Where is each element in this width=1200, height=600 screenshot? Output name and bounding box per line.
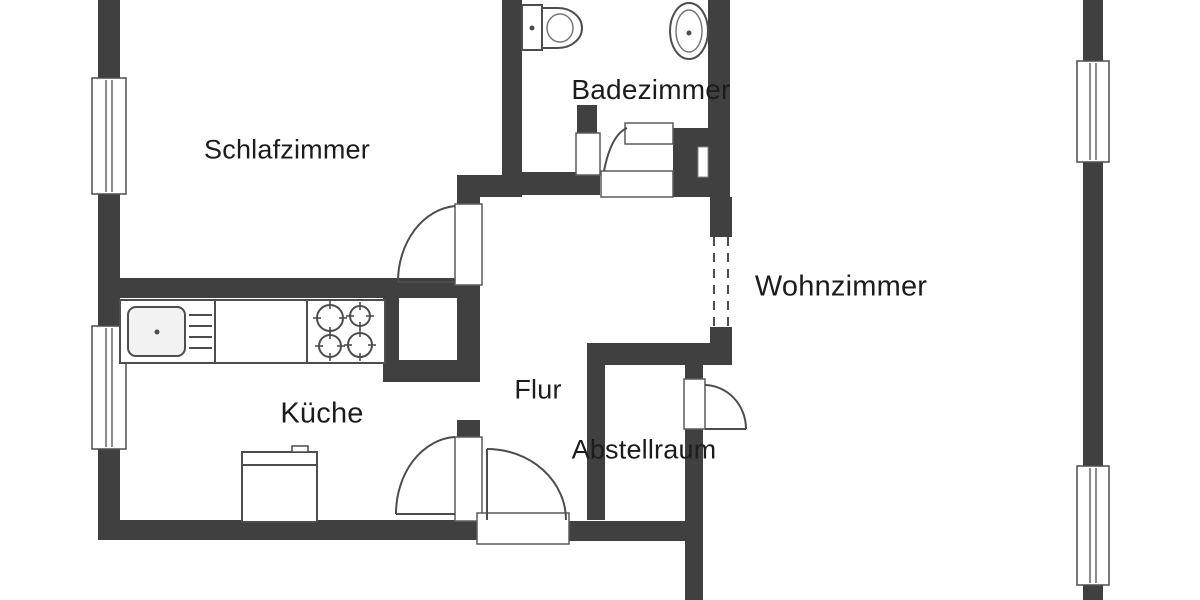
window-living-top xyxy=(1077,61,1109,162)
sink-drain xyxy=(155,330,160,335)
room-label-badezimmer: Badezimmer xyxy=(571,74,730,106)
window-bedroom xyxy=(92,78,126,194)
kitchen-door-jamb xyxy=(455,437,482,521)
wall-left-top xyxy=(98,0,120,80)
storage-door-arc xyxy=(705,385,746,429)
window-living-bottom xyxy=(1077,466,1109,585)
wall-right-bottom xyxy=(1083,584,1103,600)
floor-plan: SchlafzimmerBadezimmerWohnzimmerKücheFlu… xyxy=(0,0,1200,600)
wall-bottom-right xyxy=(567,521,703,541)
bathroom-door-arc xyxy=(604,128,627,171)
wall-kitchen-door-stub xyxy=(457,420,480,438)
entrance-door-arc xyxy=(487,449,566,520)
wall-bathroom-right xyxy=(708,0,730,128)
bathroom-door-jamb xyxy=(601,171,673,197)
fridge-handle xyxy=(292,446,308,452)
room-label-flur: Flur xyxy=(514,375,561,406)
wall-flur-wohnzimmer-top xyxy=(710,197,732,237)
toilet-dot xyxy=(530,26,535,31)
wall-left-mid xyxy=(98,192,120,328)
wall-niche-bottom xyxy=(383,360,480,382)
bedroom-door-arc xyxy=(398,206,455,282)
room-label-kueche: Küche xyxy=(280,398,363,431)
bathroom-door-leaf xyxy=(625,123,673,144)
storage-door-leaf xyxy=(684,379,705,429)
room-label-schlafzimmer: Schlafzimmer xyxy=(204,135,370,166)
bathroom-wall-jamb xyxy=(576,133,600,175)
wall-niche-slot xyxy=(698,147,708,177)
room-label-abstellraum: Abstellraum xyxy=(572,435,717,466)
entrance-door-jamb xyxy=(477,513,569,544)
wall-right-mid xyxy=(1083,161,1103,467)
wall-storage-top xyxy=(587,343,732,365)
wall-right-top xyxy=(1083,0,1103,62)
bedroom-door-jamb xyxy=(455,204,482,285)
basin-drain xyxy=(687,31,692,36)
wall-bedroom-bathroom xyxy=(502,0,522,193)
wall-storage-right-a xyxy=(685,365,703,380)
room-label-wohnzimmer: Wohnzimmer xyxy=(755,271,927,304)
kitchen-door-arc xyxy=(396,437,455,514)
wall-bathroom-pilaster xyxy=(577,105,597,133)
fridge xyxy=(242,452,317,522)
